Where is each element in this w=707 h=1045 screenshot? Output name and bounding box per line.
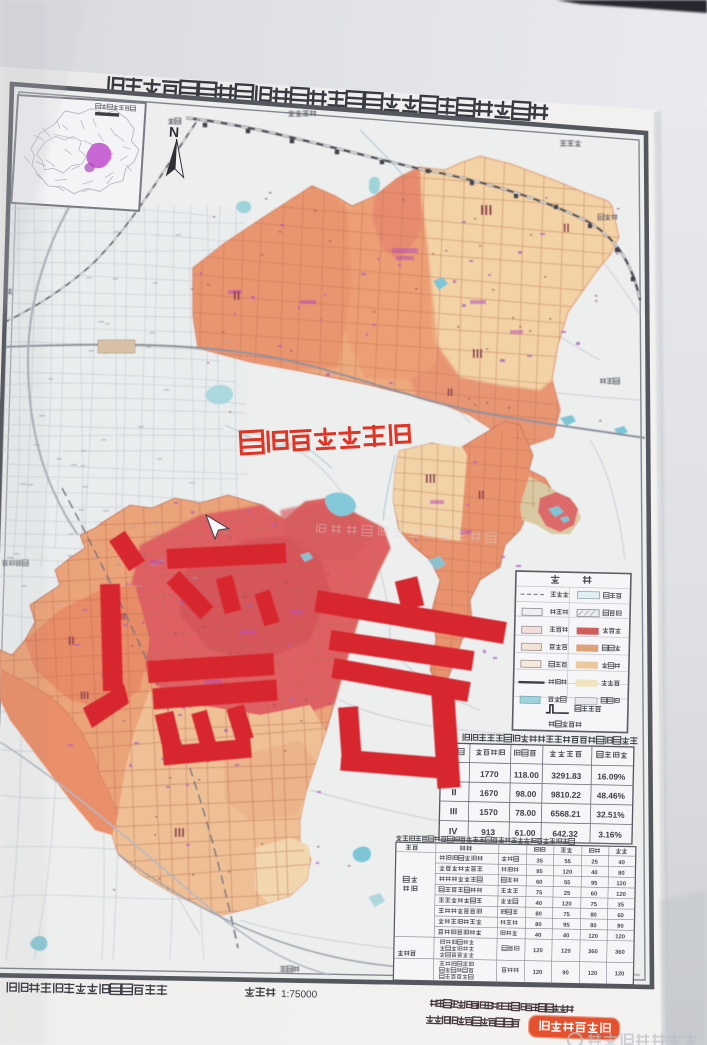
svg-text:1570: 1570 [479,807,498,817]
svg-text:9810.22: 9810.22 [551,789,582,800]
svg-text:913: 913 [481,827,495,837]
svg-text:N: N [169,124,180,141]
svg-text:95: 95 [536,869,543,875]
svg-text:III: III [472,346,483,361]
svg-text:80: 80 [618,871,625,877]
svg-text:98.00: 98.00 [515,789,536,799]
svg-text:32.51%: 32.51% [596,809,625,820]
svg-text:55: 55 [564,859,571,865]
svg-text:61.00: 61.00 [515,828,536,838]
svg-text:40: 40 [563,933,570,939]
svg-text:35: 35 [618,902,625,908]
svg-text:25: 25 [564,891,571,897]
svg-text:120: 120 [563,870,573,876]
svg-text:25: 25 [591,860,598,866]
svg-text:3.16%: 3.16% [598,829,622,840]
svg-text:78.00: 78.00 [515,808,536,818]
svg-text:II: II [68,634,75,648]
svg-text:120: 120 [616,881,626,887]
svg-text:40: 40 [536,901,543,907]
svg-text:80: 80 [535,912,542,918]
svg-text:40: 40 [591,870,598,876]
svg-text:120: 120 [561,949,571,955]
svg-text:80: 80 [535,922,542,928]
svg-text:120: 120 [588,934,598,940]
svg-text:II: II [478,488,485,502]
svg-text:60: 60 [617,913,624,919]
svg-text:120: 120 [615,971,625,977]
svg-text:II: II [563,221,570,235]
svg-text:40: 40 [535,933,542,939]
svg-text:3291.83: 3291.83 [551,770,582,781]
svg-text:118.00: 118.00 [514,770,540,781]
svg-text:75: 75 [563,912,570,918]
svg-text:360: 360 [588,949,598,955]
svg-text:75: 75 [591,902,598,908]
svg-text:95: 95 [591,881,598,887]
svg-text:95: 95 [563,923,570,929]
svg-text:40: 40 [618,860,625,866]
svg-text:III: III [80,690,89,702]
svg-text:120: 120 [588,971,598,977]
svg-text:16.09%: 16.09% [597,771,626,782]
svg-text:80: 80 [617,924,624,930]
svg-text:III: III [450,806,458,816]
svg-text:III: III [425,471,436,486]
svg-text:III: III [174,825,185,840]
svg-text:60: 60 [591,891,598,897]
svg-text:IV: IV [449,826,458,836]
svg-text:80: 80 [590,913,597,919]
svg-text:90: 90 [562,970,569,976]
svg-text:II: II [447,387,453,399]
svg-text:120: 120 [533,948,543,954]
svg-text:120: 120 [616,892,626,898]
svg-text:II: II [451,787,456,797]
svg-text:1670: 1670 [480,788,499,798]
svg-text:48.46%: 48.46% [597,790,626,801]
svg-text:35: 35 [536,859,543,865]
svg-text:120: 120 [615,934,625,940]
svg-text:55: 55 [564,880,571,886]
svg-text:80: 80 [590,923,597,929]
svg-text:6568.21: 6568.21 [550,808,581,819]
svg-text:360: 360 [615,950,625,956]
svg-text:60: 60 [536,880,543,886]
svg-text:1770: 1770 [480,769,499,779]
svg-text:75: 75 [536,890,543,896]
svg-text:120: 120 [562,901,572,907]
svg-text:642.32: 642.32 [552,828,578,839]
svg-text:120: 120 [533,970,543,976]
svg-text:II: II [233,288,240,303]
svg-text:1:75000: 1:75000 [281,989,318,1001]
svg-text:III: III [480,202,493,219]
